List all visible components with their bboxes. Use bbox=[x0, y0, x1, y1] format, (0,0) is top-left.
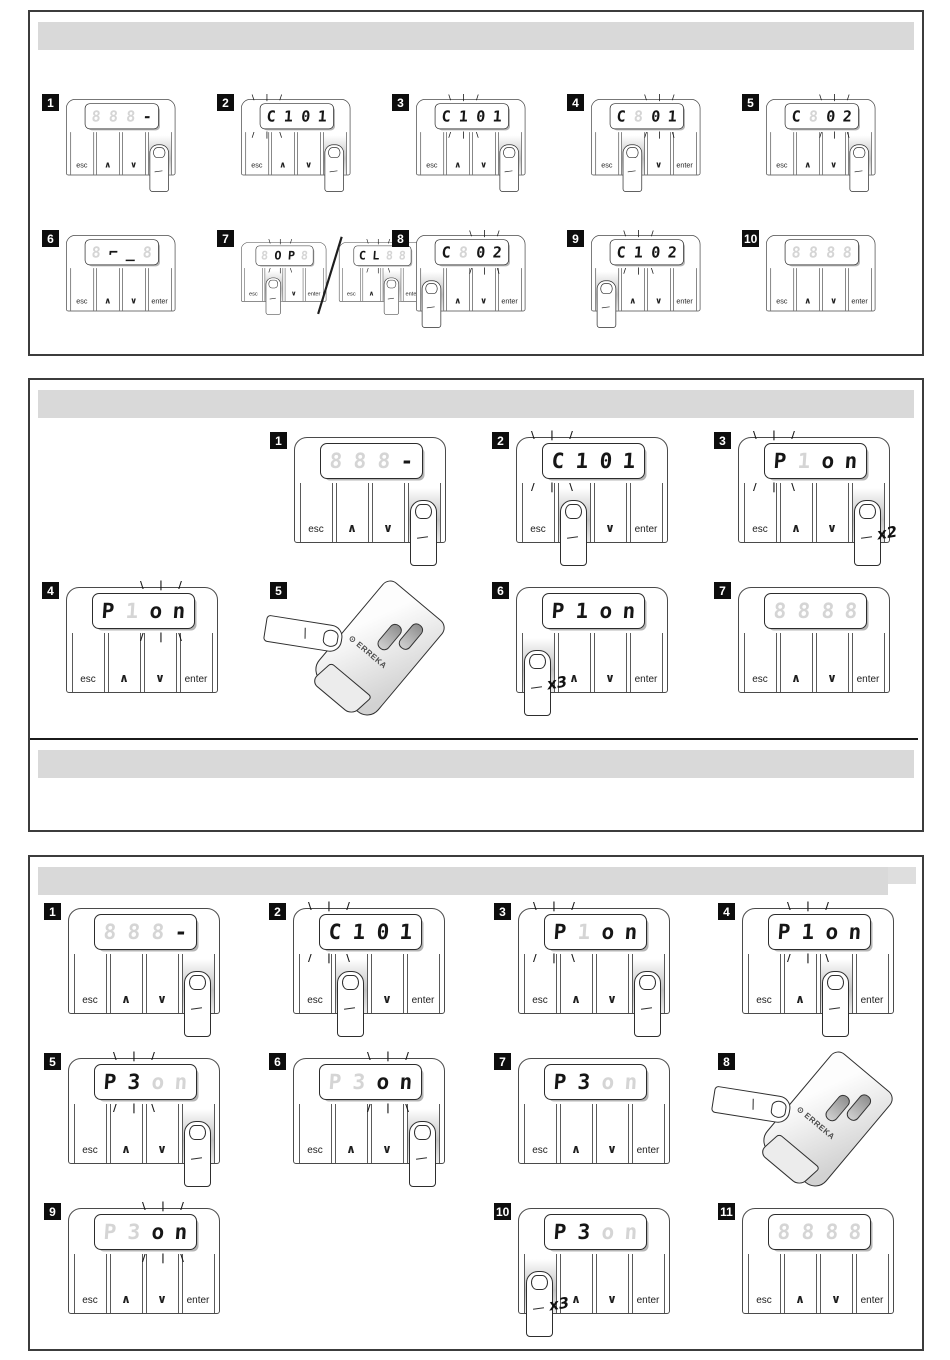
step-number: 5 bbox=[270, 582, 287, 599]
lcd-display: C802\ | // | \ bbox=[785, 103, 859, 129]
step-figure: 8OP8\ | // | \esc∧∨enterCL88\ | // | \es… bbox=[241, 235, 428, 321]
lcd-char: 8 bbox=[804, 109, 822, 124]
lcd-char: 8 bbox=[839, 601, 864, 622]
control-panel: P3onesc∧∨enter bbox=[518, 1058, 670, 1164]
down-button: ∨ bbox=[820, 1254, 853, 1313]
button-row: esc∧∨enter bbox=[522, 1104, 666, 1163]
step-figure: 8888esc∧∨enter bbox=[738, 587, 890, 693]
step-figure: C101\ | // | \esc∧∨enter bbox=[293, 908, 445, 1014]
blink-rays-top-icon: \ | / bbox=[137, 1201, 195, 1212]
esc-button: esc bbox=[74, 1254, 107, 1313]
esc-button: esc bbox=[595, 132, 619, 174]
up-button-label: ∧ bbox=[571, 1142, 581, 1156]
lcd-char: o bbox=[145, 1222, 170, 1243]
remote-button-icon bbox=[375, 621, 404, 652]
finger-pointer bbox=[184, 971, 211, 1037]
esc-button-label: esc bbox=[756, 1295, 772, 1306]
step-figure: P1onesc∧∨enterx3 bbox=[516, 587, 668, 693]
esc-button-label: esc bbox=[532, 1145, 548, 1156]
down-button-label: ∨ bbox=[607, 1292, 617, 1306]
section-panel-1: 1888-esc∧∨enter2C101\ | // | \esc∧∨enter… bbox=[28, 10, 924, 356]
step-number: 10 bbox=[742, 230, 759, 247]
up-button-label: ∧ bbox=[571, 1292, 581, 1306]
lcd-char: 8 bbox=[771, 1222, 796, 1243]
blink-rays-top-icon: \ | / bbox=[623, 230, 653, 238]
up-button-label: ∧ bbox=[454, 295, 461, 305]
lcd-char: C bbox=[787, 109, 805, 124]
up-button: ∧ bbox=[110, 954, 143, 1013]
lcd-display: CL88\ | // | \ bbox=[354, 246, 412, 266]
enter-button-label: enter bbox=[851, 298, 867, 306]
lcd-char: 1 bbox=[791, 451, 816, 472]
enter-button: enter bbox=[856, 1254, 889, 1313]
blink-rays-top-icon: \ | / bbox=[308, 901, 354, 912]
control-panel: C101\ | // | \esc∧∨enter bbox=[516, 437, 668, 543]
lcd-char: 3 bbox=[346, 1072, 371, 1093]
lcd-char: 1 bbox=[663, 109, 681, 124]
up-button-label: ∧ bbox=[795, 992, 805, 1006]
step-number: 4 bbox=[42, 582, 59, 599]
control-panel: P3on\ | // | \esc∧∨enter bbox=[68, 1208, 220, 1314]
lcd-char: 8 bbox=[121, 109, 139, 124]
lcd-char: 8 bbox=[347, 451, 372, 472]
lcd-display: 8OP8\ | // | \ bbox=[256, 246, 314, 266]
esc-button-label: esc bbox=[249, 291, 258, 297]
step-figure: 8888esc∧∨enter bbox=[766, 235, 875, 311]
control-panel: 8888esc∧∨enter bbox=[738, 587, 890, 693]
lcd-char: 8 bbox=[257, 250, 271, 262]
esc-button: esc bbox=[770, 268, 794, 310]
lcd-char: P bbox=[771, 922, 796, 943]
blink-rays-top-icon: \ | / bbox=[113, 1051, 155, 1062]
lcd-char: 0 bbox=[593, 451, 618, 472]
control-panel: 8⌐_8esc∧∨enter bbox=[66, 235, 175, 311]
step-number: 9 bbox=[44, 1203, 61, 1220]
blink-rays-bottom-icon: / | \ bbox=[641, 131, 683, 139]
esc-button: esc bbox=[770, 132, 794, 174]
step-number: 10 bbox=[494, 1203, 511, 1220]
up-button: ∧ bbox=[96, 132, 120, 174]
enter-button: enter bbox=[630, 633, 663, 692]
blink-rays-bottom-icon: / | \ bbox=[362, 1103, 420, 1114]
lcd-char: ⌐ bbox=[104, 245, 122, 260]
down-button: ∨ bbox=[822, 268, 846, 310]
lcd-char: P bbox=[547, 1072, 572, 1093]
down-button-label: ∨ bbox=[155, 671, 165, 685]
esc-button: esc bbox=[524, 1104, 557, 1163]
control-panel: C802\ | // | \esc∧∨enter bbox=[766, 99, 875, 175]
step-figure: C101\ | // | \esc∧∨enter bbox=[416, 99, 525, 175]
control-panel-mini: 8OP8\ | // | \esc∧∨enter bbox=[241, 242, 326, 302]
esc-button: esc bbox=[70, 132, 94, 174]
control-panel: P1on\ | // | \esc∧∨enter bbox=[742, 908, 894, 1014]
enter-button-label: enter bbox=[412, 995, 435, 1006]
lcd-char: 1 bbox=[279, 109, 297, 124]
lcd-char: 8 bbox=[838, 245, 856, 260]
finger-pointer bbox=[337, 971, 364, 1037]
enter-button: enter bbox=[632, 1104, 665, 1163]
down-button-label: ∨ bbox=[605, 521, 615, 535]
step-figure: P3on\ | // | \esc∧∨enter bbox=[68, 1208, 220, 1314]
enter-button-label: enter bbox=[635, 524, 658, 535]
esc-button: esc bbox=[74, 954, 107, 1013]
step-number: 7 bbox=[494, 1053, 511, 1070]
lcd-char: o bbox=[595, 922, 620, 943]
blink-rays-top-icon: \ | / bbox=[448, 94, 478, 102]
lcd-char: 2 bbox=[663, 245, 681, 260]
lcd-char: 8 bbox=[87, 109, 105, 124]
step-figure: P1on\ | // | \esc∧∨enter bbox=[518, 908, 670, 1014]
step-figure: 888-esc∧∨enter bbox=[68, 908, 220, 1014]
down-button-label: ∨ bbox=[655, 295, 662, 305]
lcd-char: n bbox=[843, 922, 868, 943]
finger-pointer bbox=[822, 971, 849, 1037]
control-panel: P1on\ | // | \esc∧∨enter bbox=[66, 587, 218, 693]
step-number: 3 bbox=[714, 432, 731, 449]
step-number: 1 bbox=[270, 432, 287, 449]
control-panel: P3on\ | // | \esc∧∨enter bbox=[68, 1058, 220, 1164]
lcd-char: - bbox=[169, 922, 194, 943]
lcd-char: - bbox=[138, 109, 156, 124]
down-button-label: ∨ bbox=[607, 992, 617, 1006]
down-button: ∨ bbox=[146, 954, 179, 1013]
control-panel: P3on\ | // | \esc∧∨enter bbox=[293, 1058, 445, 1164]
remote-clip bbox=[758, 1133, 820, 1187]
panel-pair: 8OP8\ | // | \esc∧∨enterCL88\ | // | \es… bbox=[241, 235, 428, 321]
lcd-char: 8 bbox=[371, 451, 396, 472]
enter-button: enter bbox=[630, 483, 663, 542]
lcd-char: - bbox=[395, 451, 420, 472]
lcd-char: P bbox=[97, 1222, 122, 1243]
blink-rays-bottom-icon: / | \ bbox=[137, 1253, 195, 1264]
step-number: 8 bbox=[392, 230, 409, 247]
lcd-char: n bbox=[839, 451, 864, 472]
lcd-char: 8 bbox=[145, 922, 170, 943]
finger-pointer bbox=[623, 144, 642, 192]
blink-rays-top-icon: \ | / bbox=[753, 430, 799, 441]
step-figure: ⊙ ERREKA bbox=[294, 587, 469, 727]
esc-button-label: esc bbox=[601, 162, 612, 170]
up-button-label: ∧ bbox=[795, 1292, 805, 1306]
control-panel: 8OP8\ | // | \esc∧∨enter bbox=[241, 242, 326, 302]
down-button: ∨ bbox=[816, 483, 849, 542]
lcd-display: C101\ | // | \ bbox=[319, 914, 422, 950]
lcd-char: o bbox=[143, 601, 168, 622]
finger-pointer bbox=[500, 144, 519, 192]
up-button-label: ∧ bbox=[121, 992, 131, 1006]
lcd-char: P bbox=[97, 1072, 122, 1093]
up-button-label: ∧ bbox=[804, 159, 811, 169]
section-header-bar bbox=[38, 22, 914, 50]
remote-button-icon bbox=[396, 621, 425, 652]
button-row: esc∧∨enter bbox=[769, 268, 873, 310]
blink-rays-top-icon: \ | / bbox=[466, 230, 508, 238]
finger-pointer bbox=[263, 615, 344, 654]
step-number: 5 bbox=[44, 1053, 61, 1070]
up-button-label: ∧ bbox=[121, 1292, 131, 1306]
lcd-char: o bbox=[595, 1072, 620, 1093]
control-panel: P3onesc∧∨enterx3 bbox=[518, 1208, 670, 1314]
blink-rays-bottom-icon: / | \ bbox=[787, 953, 829, 964]
lcd-char: C bbox=[355, 250, 369, 262]
lcd-char: C bbox=[612, 245, 630, 260]
control-panel: P1on\ | // | \esc∧∨enter bbox=[518, 908, 670, 1014]
lcd-display: P1on\ | // | \ bbox=[764, 443, 867, 479]
press-count-note: x2 bbox=[876, 523, 899, 544]
finger-pointer bbox=[184, 1121, 211, 1187]
esc-button-label: esc bbox=[530, 524, 546, 535]
control-panel: 888-esc∧∨enter bbox=[294, 437, 446, 543]
down-button-label: ∨ bbox=[655, 159, 662, 169]
esc-button-label: esc bbox=[80, 674, 96, 685]
step-figure: 888-esc∧∨enter bbox=[294, 437, 446, 543]
down-button: ∨ bbox=[594, 633, 627, 692]
lcd-char: 0 bbox=[296, 109, 314, 124]
control-panel: 888-esc∧∨enter bbox=[66, 99, 175, 175]
down-button-label: ∨ bbox=[130, 159, 137, 169]
esc-button: esc bbox=[70, 268, 94, 310]
esc-button: esc bbox=[420, 132, 444, 174]
lcd-display: 888- bbox=[85, 103, 159, 129]
step-figure: C802\ | // | \esc∧∨enter bbox=[416, 235, 525, 311]
lcd-char: 1 bbox=[569, 451, 594, 472]
down-button-label: ∨ bbox=[157, 992, 167, 1006]
up-button-label: ∧ bbox=[804, 295, 811, 305]
enter-button: enter bbox=[673, 268, 697, 310]
step-figure: C801\ | // | \esc∧∨enter bbox=[591, 99, 700, 175]
step-figure: C101\ | // | \esc∧∨enter bbox=[516, 437, 668, 543]
step-number: 8 bbox=[718, 1053, 735, 1070]
lcd-char: 1 bbox=[629, 245, 647, 260]
remote-control: ⊙ ERREKA bbox=[294, 587, 469, 727]
esc-button: esc bbox=[72, 633, 105, 692]
esc-button-label: esc bbox=[82, 1295, 98, 1306]
step-number: 11 bbox=[718, 1203, 735, 1220]
up-button-label: ∧ bbox=[454, 159, 461, 169]
lcd-display: 8888 bbox=[785, 239, 859, 265]
control-panel: P1onesc∧∨enterx3 bbox=[516, 587, 668, 693]
lcd-char: 1 bbox=[488, 109, 506, 124]
remote-clip bbox=[310, 662, 372, 716]
lcd-char: o bbox=[145, 1072, 170, 1093]
lcd-char: n bbox=[169, 1072, 194, 1093]
lcd-char: n bbox=[169, 1222, 194, 1243]
lcd-char: 8 bbox=[104, 109, 122, 124]
esc-button-label: esc bbox=[776, 298, 787, 306]
lcd-char: 1 bbox=[569, 601, 594, 622]
lcd-display: C101\ | // | \ bbox=[260, 103, 334, 129]
finger-pointer bbox=[409, 1121, 436, 1187]
blink-rays-top-icon: \ | / bbox=[787, 901, 829, 912]
lcd-char: 1 bbox=[313, 109, 331, 124]
down-button-label: ∨ bbox=[383, 521, 393, 535]
button-row: esc∧∨enter bbox=[69, 268, 173, 310]
down-button: ∨ bbox=[594, 483, 627, 542]
lcd-char: C bbox=[437, 109, 455, 124]
step-figure: P1on\ | // | \esc∧∨enterx2 bbox=[738, 437, 890, 543]
esc-button: esc bbox=[744, 633, 777, 692]
section-header-bar-notch bbox=[888, 867, 916, 884]
down-button: ∨ bbox=[596, 954, 629, 1013]
up-button: ∧ bbox=[96, 268, 120, 310]
enter-button: enter bbox=[848, 268, 872, 310]
lcd-display: 8888 bbox=[764, 593, 867, 629]
step-figure: P3on\ | // | \esc∧∨enter bbox=[293, 1058, 445, 1164]
lcd-display: C801\ | // | \ bbox=[610, 103, 684, 129]
lcd-char: n bbox=[394, 1072, 419, 1093]
finger-pointer bbox=[850, 144, 869, 192]
lcd-char: L bbox=[369, 250, 383, 262]
control-panel: C101\ | // | \esc∧∨enter bbox=[416, 99, 525, 175]
esc-button-label: esc bbox=[532, 995, 548, 1006]
button-row: esc∧∨enter bbox=[742, 633, 886, 692]
step-figure: P3on\ | // | \esc∧∨enter bbox=[68, 1058, 220, 1164]
lcd-char: n bbox=[619, 1072, 644, 1093]
lcd-char: 8 bbox=[138, 245, 156, 260]
lcd-char: 8 bbox=[767, 601, 792, 622]
blink-rays-bottom-icon: / | \ bbox=[135, 632, 193, 643]
step-number: 6 bbox=[492, 582, 509, 599]
up-button-label: ∧ bbox=[104, 295, 111, 305]
lcd-char: o bbox=[370, 1072, 395, 1093]
lcd-char: O bbox=[271, 250, 285, 262]
down-button: ∨ bbox=[371, 954, 404, 1013]
lcd-char: 8 bbox=[121, 922, 146, 943]
lcd-display: P3on\ | // | \ bbox=[319, 1064, 422, 1100]
lcd-char: o bbox=[595, 1222, 620, 1243]
section-header-bar bbox=[38, 390, 914, 418]
esc-button: esc bbox=[748, 1254, 781, 1313]
enter-button-label: enter bbox=[308, 291, 321, 297]
lcd-char: n bbox=[619, 922, 644, 943]
down-button-label: ∨ bbox=[827, 521, 837, 535]
lcd-char: 3 bbox=[571, 1072, 596, 1093]
down-button-label: ∨ bbox=[480, 295, 487, 305]
blink-rays-bottom-icon: / | \ bbox=[533, 953, 579, 964]
step-number: 2 bbox=[269, 903, 286, 920]
enter-button-label: enter bbox=[676, 298, 692, 306]
blink-rays-top-icon: \ | / bbox=[531, 430, 577, 441]
button-row: esc∧∨enter bbox=[746, 1254, 890, 1313]
lcd-char: 0 bbox=[370, 922, 395, 943]
enter-button-label: enter bbox=[861, 1295, 884, 1306]
blink-rays-top-icon: \ | / bbox=[533, 901, 579, 912]
step-figure: C101\ | // | \esc∧∨enter bbox=[241, 99, 350, 175]
finger-pointer bbox=[597, 280, 616, 328]
lcd-char: 1 bbox=[346, 922, 371, 943]
blink-rays-bottom-icon: / | \ bbox=[308, 953, 354, 964]
enter-button: enter bbox=[407, 954, 440, 1013]
blink-rays-top-icon: \ | / bbox=[254, 238, 310, 244]
blink-rays-bottom-icon: / | \ bbox=[623, 267, 653, 275]
down-button-label: ∨ bbox=[831, 1292, 841, 1306]
enter-button-label: enter bbox=[151, 298, 167, 306]
lcd-char: 0 bbox=[646, 245, 664, 260]
lcd-char: 2 bbox=[838, 109, 856, 124]
finger-pointer bbox=[325, 144, 344, 192]
up-button-label: ∧ bbox=[569, 671, 579, 685]
control-panel: 8888esc∧∨enter bbox=[742, 1208, 894, 1314]
lcd-char: 8 bbox=[87, 245, 105, 260]
down-button: ∨ bbox=[297, 132, 321, 174]
lcd-char: n bbox=[619, 1222, 644, 1243]
blink-rays-bottom-icon: / | \ bbox=[466, 267, 508, 275]
lcd-char: o bbox=[819, 922, 844, 943]
up-button: ∧ bbox=[780, 633, 813, 692]
lcd-char: P bbox=[284, 250, 298, 262]
lcd-char: n bbox=[167, 601, 192, 622]
esc-button-label: esc bbox=[251, 162, 262, 170]
enter-button: enter bbox=[856, 954, 889, 1013]
blink-rays-bottom-icon: / | \ bbox=[252, 131, 285, 139]
press-count-note: x3 bbox=[546, 673, 569, 694]
enter-button-label: enter bbox=[637, 1145, 660, 1156]
esc-button-label: esc bbox=[752, 524, 768, 535]
lcd-char: 8 bbox=[297, 250, 311, 262]
lcd-char: P bbox=[322, 1072, 347, 1093]
down-button-label: ∨ bbox=[830, 295, 837, 305]
enter-button: enter bbox=[632, 1254, 665, 1313]
lcd-char: o bbox=[815, 451, 840, 472]
down-button-label: ∨ bbox=[830, 159, 837, 169]
control-panel: C801\ | // | \esc∧∨enter bbox=[591, 99, 700, 175]
lcd-display: P3on\ | // | \ bbox=[94, 1064, 197, 1100]
down-button-label: ∨ bbox=[157, 1142, 167, 1156]
section-footer-header-bar bbox=[38, 750, 914, 778]
lcd-char: 8 bbox=[843, 1222, 868, 1243]
lcd-char: o bbox=[593, 601, 618, 622]
down-button: ∨ bbox=[122, 268, 146, 310]
remote-control: ⊙ ERREKA bbox=[742, 1058, 917, 1198]
lcd-char: 8 bbox=[395, 250, 409, 262]
section-header-bar bbox=[38, 867, 888, 895]
lcd-char: 8 bbox=[382, 250, 396, 262]
down-button-label: ∨ bbox=[827, 671, 837, 685]
esc-button-label: esc bbox=[307, 995, 323, 1006]
lcd-char: P bbox=[767, 451, 792, 472]
up-button-label: ∧ bbox=[791, 671, 801, 685]
step-number: 9 bbox=[567, 230, 584, 247]
control-panel: C101\ | // | \esc∧∨enter bbox=[241, 99, 350, 175]
down-button-label: ∨ bbox=[157, 1292, 167, 1306]
remote-button-icon bbox=[844, 1092, 873, 1123]
esc-button: esc bbox=[748, 954, 781, 1013]
lcd-display: 8888 bbox=[768, 1214, 871, 1250]
finger-pointer bbox=[634, 971, 661, 1037]
lcd-display: P3on bbox=[544, 1214, 647, 1250]
esc-button: esc bbox=[300, 483, 333, 542]
lcd-char: 1 bbox=[571, 922, 596, 943]
enter-button-label: enter bbox=[501, 298, 517, 306]
enter-button-label: enter bbox=[635, 674, 658, 685]
lcd-char: _ bbox=[121, 245, 139, 260]
enter-button: enter bbox=[148, 268, 172, 310]
lcd-char: 0 bbox=[646, 109, 664, 124]
step-number: 6 bbox=[42, 230, 59, 247]
esc-button: esc bbox=[299, 1104, 332, 1163]
esc-button: esc bbox=[74, 1104, 107, 1163]
finger-pointer bbox=[422, 280, 441, 328]
lcd-char: P bbox=[545, 601, 570, 622]
step-number: 5 bbox=[742, 94, 759, 111]
esc-button-label: esc bbox=[347, 291, 356, 297]
step-figure: ⊙ ERREKA bbox=[742, 1058, 917, 1198]
lcd-display: P1on\ | // | \ bbox=[92, 593, 195, 629]
lcd-char: 8 bbox=[787, 245, 805, 260]
lcd-display: P1on\ | // | \ bbox=[768, 914, 871, 950]
up-button-label: ∧ bbox=[369, 289, 374, 297]
step-number: 1 bbox=[44, 903, 61, 920]
